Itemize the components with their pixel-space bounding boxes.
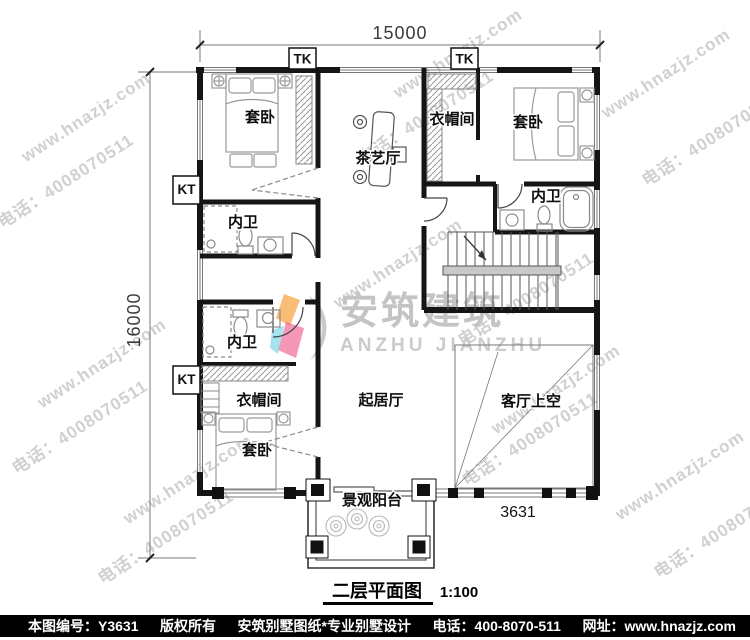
footer-brand: 安筑别墅图纸*专业别墅设计 (238, 616, 411, 636)
void-marker (455, 345, 593, 488)
room-label-bedroom-1: 套卧 (244, 108, 275, 126)
footer-sheet-number: 本图编号：Y3631 (28, 616, 138, 636)
room-label-cloakroom-1: 衣帽间 (429, 110, 474, 128)
tk-shaft-label: TK (294, 52, 312, 67)
wardrobe-top-left (296, 76, 312, 164)
room-label-living: 起居厅 (357, 392, 403, 409)
drawing-title: 二层平面图 (332, 581, 422, 601)
span-number: 3631 (500, 504, 536, 521)
stairs (443, 232, 561, 310)
kt-shaft-label: KT (178, 182, 197, 197)
room-label-balcony: 景观阳台 (342, 491, 402, 509)
room-label-tea-hall: 茶艺厅 (355, 149, 400, 167)
dimension-height-label: 16000 (124, 292, 144, 347)
drawing-scale: 1:100 (440, 584, 478, 601)
floorplan-page: www.hnazjz.com 电话：4008070511 www.hnazjz.… (0, 0, 750, 640)
room-label-void: 客厅上空 (500, 392, 561, 410)
balcony-plants (326, 509, 389, 536)
dimension-left (138, 68, 196, 562)
dimension-width-label: 15000 (372, 23, 427, 43)
title-underline (323, 602, 433, 605)
room-label-bedroom-2: 套卧 (512, 113, 543, 131)
footer-phone: 电话：400-8070-511 (433, 616, 561, 636)
interior-walls (200, 68, 597, 497)
footer-copyright: 版权所有 (160, 616, 216, 636)
doors (252, 168, 522, 496)
room-label-bedroom-3: 套卧 (241, 441, 272, 459)
floorplan-drawing: 15000 16000 (0, 0, 750, 615)
room-label-bathroom-1: 内卫 (228, 213, 258, 231)
footer-bar: 本图编号：Y3631 版权所有 安筑别墅图纸*专业别墅设计 电话：400-807… (0, 615, 750, 637)
kt-shaft-label: KT (178, 372, 197, 387)
footer-website: 网址：www.hnazjz.com (582, 616, 736, 636)
room-label-bathroom-3: 内卫 (227, 333, 257, 351)
room-label-cloakroom-2: 衣帽间 (236, 391, 281, 409)
tk-shaft-label: TK (456, 52, 474, 67)
room-label-bathroom-2: 内卫 (531, 187, 561, 205)
